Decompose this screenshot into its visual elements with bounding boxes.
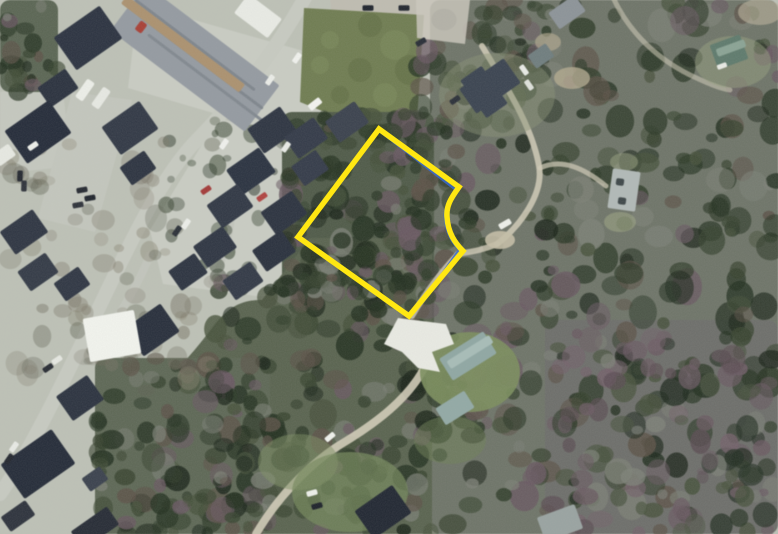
- aerial-photo-canvas: [0, 0, 778, 534]
- photo-grain-overlay: [0, 0, 778, 534]
- aerial-orthophoto: [0, 0, 778, 534]
